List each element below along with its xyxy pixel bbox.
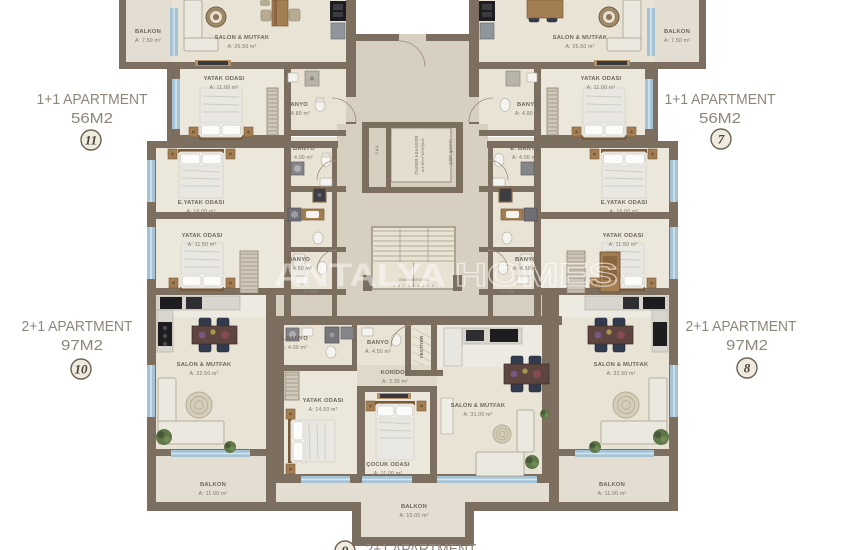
svg-text:A: 31.00 m²: A: 31.00 m² xyxy=(463,412,492,418)
svg-text:2+1 APARTMENT: 2+1 APARTMENT xyxy=(366,541,477,550)
svg-text:BALKON: BALKON xyxy=(135,29,161,35)
svg-text:A: 11.00 m²: A: 11.00 m² xyxy=(374,471,403,477)
svg-text:A: 16.00 m²: A: 16.00 m² xyxy=(609,209,638,215)
svg-text:2+1 APARTMENT: 2+1 APARTMENT xyxy=(22,318,133,335)
svg-text:A: 32.50 m²: A: 32.50 m² xyxy=(189,371,218,377)
svg-text:KE 9005: KE 9005 xyxy=(500,290,514,294)
svg-text:A: 11.00 m²: A: 11.00 m² xyxy=(587,85,616,91)
svg-text:A:4.50 m² 10 KİŞİLİK: A:4.50 m² 10 KİŞİLİK xyxy=(420,138,425,172)
svg-text:2+1 APARTMENT: 2+1 APARTMENT xyxy=(686,318,797,335)
svg-text:YATAK ODASI: YATAK ODASI xyxy=(581,76,622,82)
svg-text:SALON & MUTFAK: SALON & MUTFAK xyxy=(177,362,232,368)
svg-text:BANYO: BANYO xyxy=(367,340,389,346)
svg-text:A: 32.50 m²: A: 32.50 m² xyxy=(606,371,635,377)
svg-text:A: 11.00 m²: A: 11.00 m² xyxy=(598,491,627,497)
svg-text:YATAK ODASI: YATAK ODASI xyxy=(603,233,644,239)
svg-text:SALON & MUTFAK: SALON & MUTFAK xyxy=(215,35,270,41)
svg-text:BANYO: BANYO xyxy=(515,257,537,263)
svg-text:E.YATAK ODASI: E.YATAK ODASI xyxy=(601,200,648,206)
svg-text:8: 8 xyxy=(744,361,751,376)
svg-text:A: 11.50 m²: A: 11.50 m² xyxy=(609,242,638,248)
svg-text:A: 4.50 m²: A: 4.50 m² xyxy=(513,266,539,272)
svg-text:KE 9005: KE 9005 xyxy=(304,290,318,294)
svg-text:A: 4.00 m²: A: 4.00 m² xyxy=(287,155,313,161)
svg-text:ÇÖP ŞAFTI: ÇÖP ŞAFTI xyxy=(448,139,453,165)
svg-text:A: 4.50 m²: A: 4.50 m² xyxy=(286,266,312,272)
svg-text:BALKON: BALKON xyxy=(664,29,690,35)
svg-text:7: 7 xyxy=(718,132,725,147)
svg-text:11: 11 xyxy=(85,133,97,148)
svg-text:A: 4.80 m²: A: 4.80 m² xyxy=(515,111,541,117)
svg-text:A: 26.50 m²: A: 26.50 m² xyxy=(227,44,256,50)
svg-text:ÖNDER ASANSÖR: ÖNDER ASANSÖR xyxy=(414,135,419,174)
svg-text:A: 26.50 m²: A: 26.50 m² xyxy=(565,44,594,50)
svg-text:SALON & MUTFAK: SALON & MUTFAK xyxy=(594,362,649,368)
svg-text:S.A.Ş: S.A.Ş xyxy=(375,145,379,154)
svg-text:BALKON: BALKON xyxy=(599,482,625,488)
svg-text:10: 10 xyxy=(75,362,89,377)
svg-text:BALKON: BALKON xyxy=(401,504,427,510)
svg-text:97M2: 97M2 xyxy=(61,337,103,354)
svg-text:E.BANYO: E.BANYO xyxy=(280,336,308,342)
svg-text:A: 14.50 m²: A: 14.50 m² xyxy=(308,407,337,413)
svg-text:YATAK ODASI: YATAK ODASI xyxy=(303,398,344,404)
svg-text:ÇOCUK ODASI: ÇOCUK ODASI xyxy=(366,462,410,468)
svg-text:E. BANYO: E. BANYO xyxy=(285,146,315,152)
svg-text:97M2: 97M2 xyxy=(726,337,768,354)
svg-text:A: 11.00 m²: A: 11.00 m² xyxy=(210,85,239,91)
svg-text:1+1 APARTMENT: 1+1 APARTMENT xyxy=(37,91,148,108)
svg-text:A: 4.80 m²: A: 4.80 m² xyxy=(284,111,310,117)
svg-text:A: 7.50 m²: A: 7.50 m² xyxy=(135,38,161,44)
svg-text:KORİDOR: KORİDOR xyxy=(381,369,410,376)
svg-text:A: 4.00 m²: A: 4.00 m² xyxy=(281,345,307,351)
svg-text:A: 16.00 m²: A: 16.00 m² xyxy=(186,209,215,215)
svg-text:56M2: 56M2 xyxy=(71,110,113,127)
svg-text:BALKON: BALKON xyxy=(200,482,226,488)
svg-text:A: 4.00 m²: A: 4.00 m² xyxy=(512,155,538,161)
svg-text:A: 4.50 m²: A: 4.50 m² xyxy=(365,349,391,355)
svg-text:SALON & MUTFAK: SALON & MUTFAK xyxy=(553,35,608,41)
svg-text:BANYO: BANYO xyxy=(517,102,539,108)
svg-text:A: 3.30 m²: A: 3.30 m² xyxy=(382,379,408,385)
svg-text:A: 15.00 m²: A: 15.00 m² xyxy=(399,513,428,519)
svg-text:1+1 APARTMENT: 1+1 APARTMENT xyxy=(665,91,776,108)
svg-text:VESTİYER: VESTİYER xyxy=(418,335,424,358)
svg-text:A: 11.50 m²: A: 11.50 m² xyxy=(188,242,217,248)
svg-text:9: 9 xyxy=(342,543,349,550)
svg-text:A: 7.50 m²: A: 7.50 m² xyxy=(664,38,690,44)
svg-text:SALON & MUTFAK: SALON & MUTFAK xyxy=(451,403,506,409)
svg-text:YATAK ODASI: YATAK ODASI xyxy=(204,76,245,82)
svg-text:E.YATAK ODASI: E.YATAK ODASI xyxy=(178,200,225,206)
svg-text:56M2: 56M2 xyxy=(699,110,741,127)
svg-text:BANYO: BANYO xyxy=(286,102,308,108)
svg-text:E. BANYO: E. BANYO xyxy=(510,146,540,152)
svg-text:YATAK ODASI: YATAK ODASI xyxy=(182,233,223,239)
svg-text:BANYO: BANYO xyxy=(288,257,310,263)
svg-text:A: 11.00 m²: A: 11.00 m² xyxy=(199,491,228,497)
